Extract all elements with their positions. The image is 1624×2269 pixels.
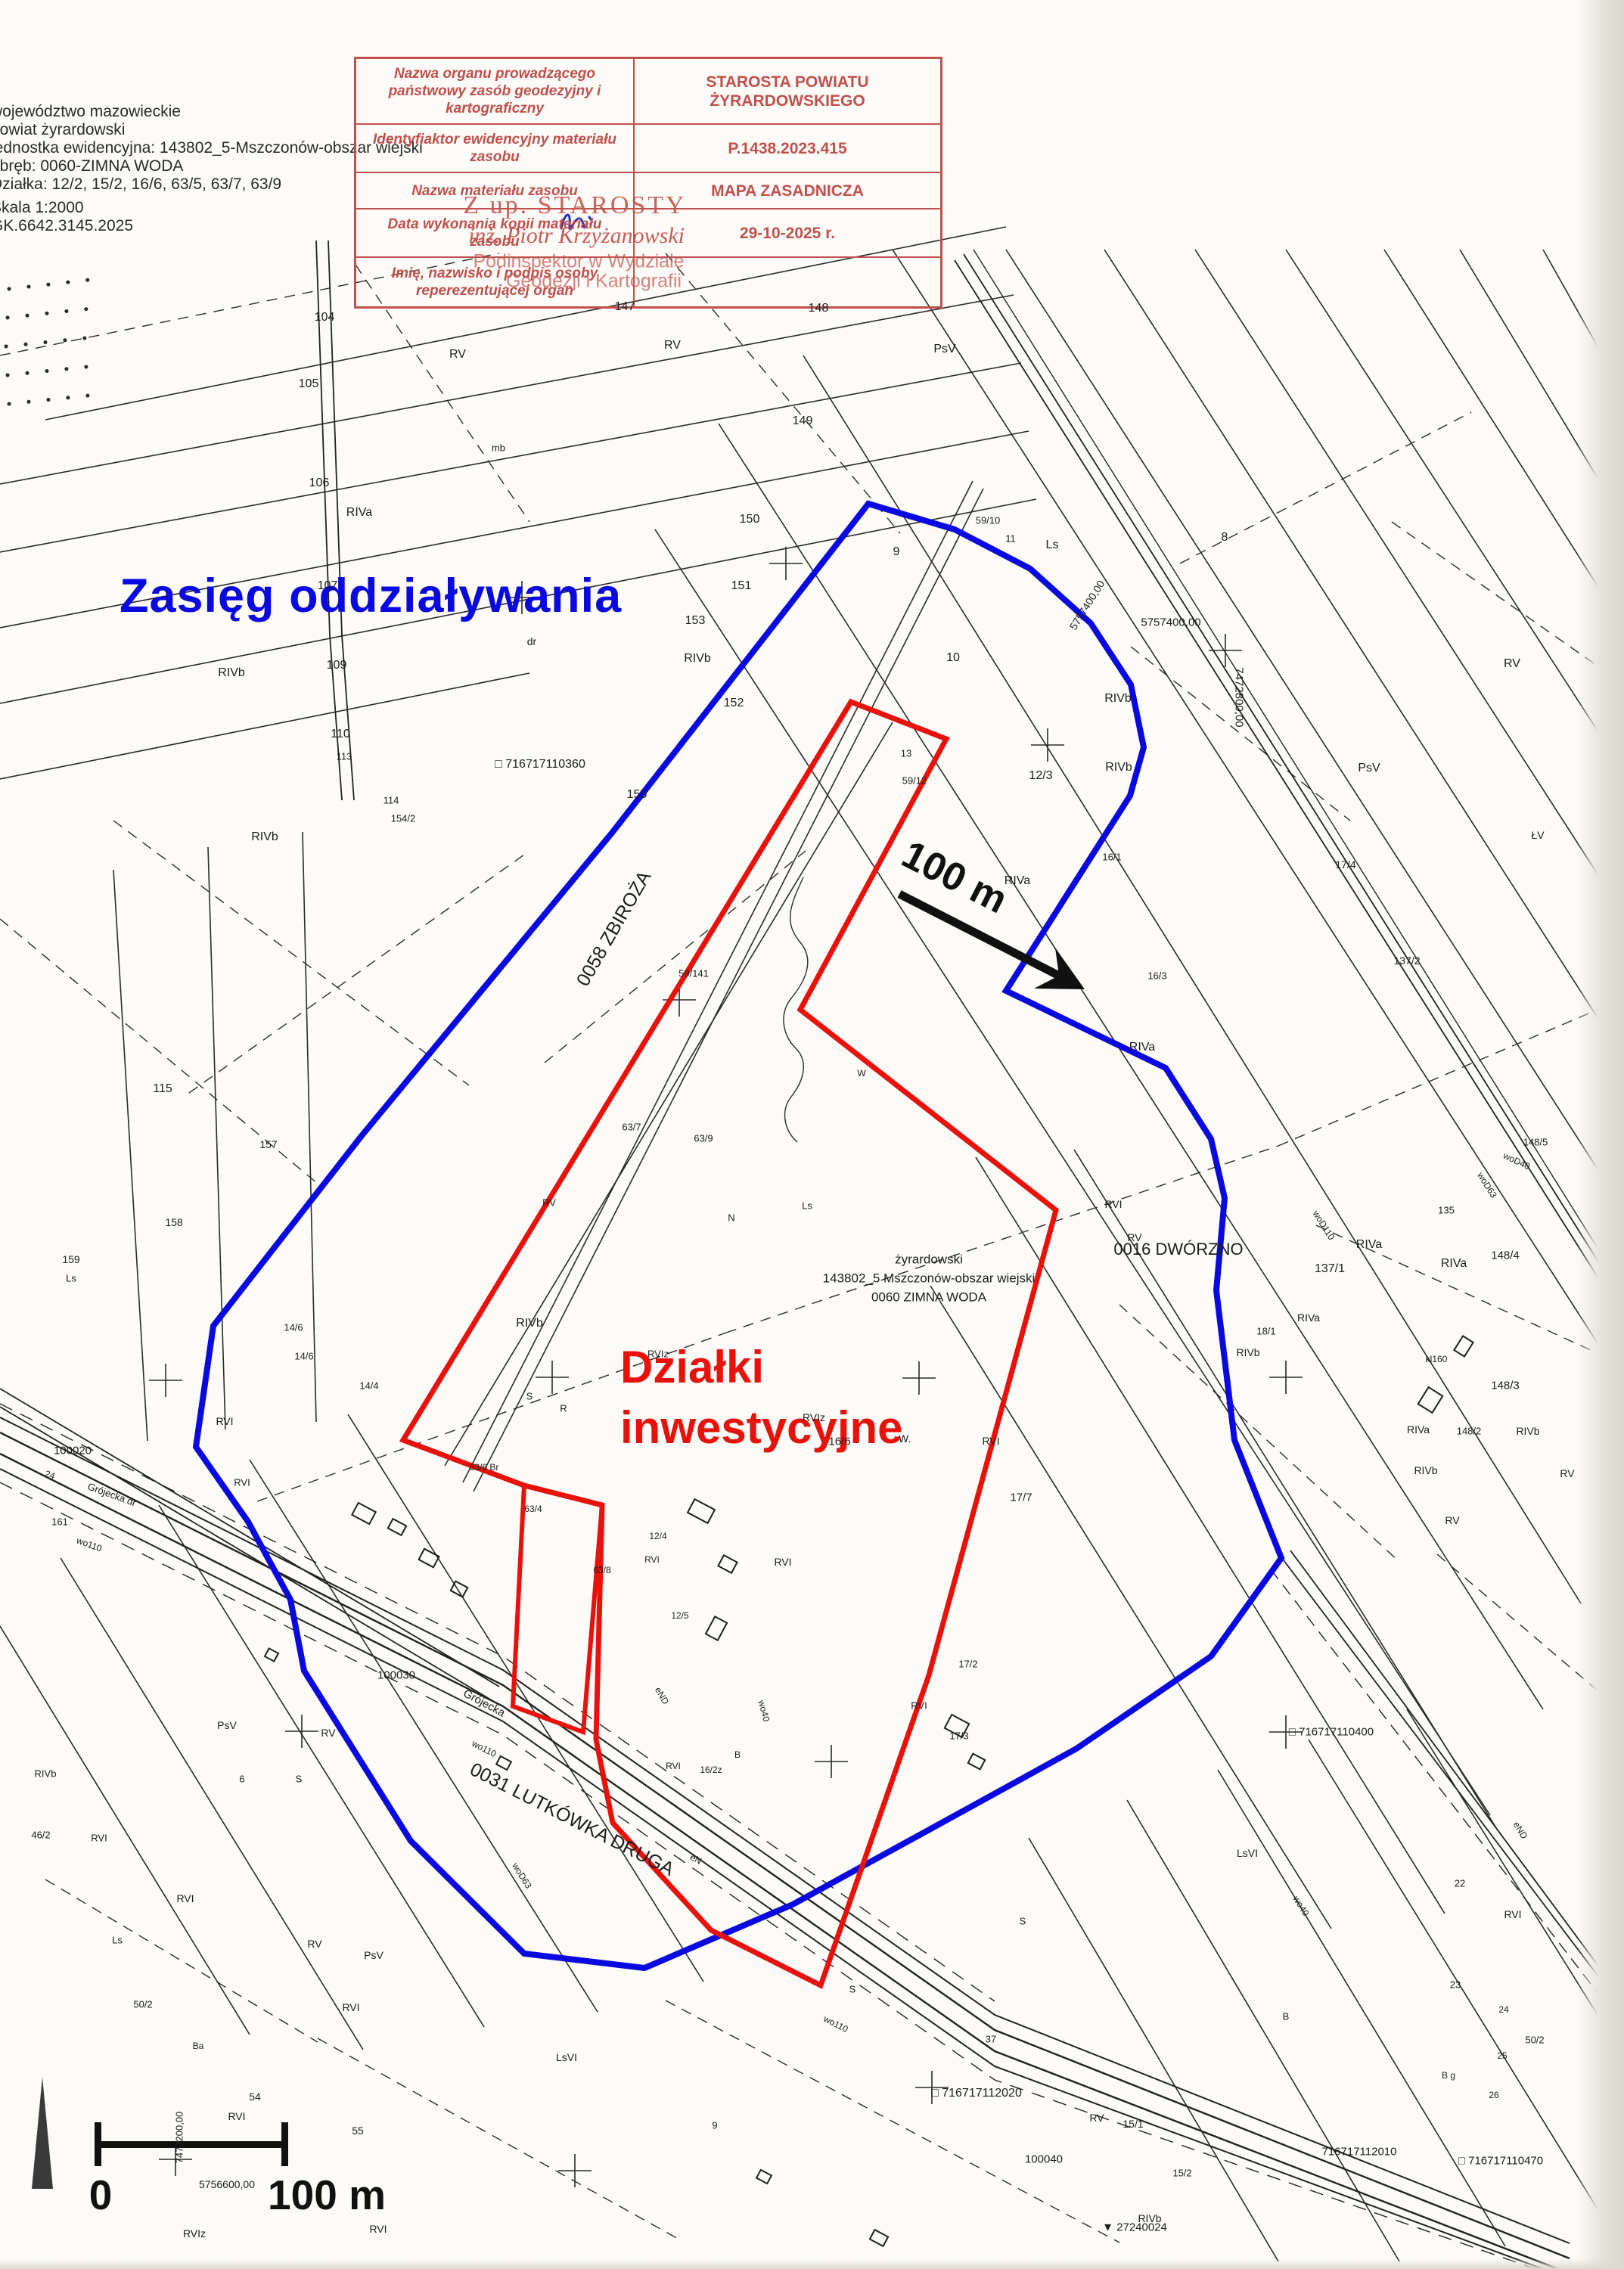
- map-label: 15/1: [1123, 2118, 1143, 2130]
- map-label: 10: [946, 651, 960, 665]
- map-label: RVI: [228, 2110, 245, 2122]
- map-label: 14/4: [359, 1380, 378, 1392]
- map-label: RV: [307, 1938, 321, 1950]
- map-label: 12/3: [1029, 769, 1052, 783]
- impact-range-outline: [196, 504, 1281, 1968]
- district-name: 0060 ZIMNA WODA: [823, 1288, 1036, 1307]
- map-label: 5757400,00: [1141, 616, 1200, 629]
- map-label: RV: [664, 339, 681, 352]
- map-label: RIVb: [1414, 1464, 1437, 1476]
- map-label: RV: [449, 348, 466, 362]
- map-label: □ 716717110400: [1289, 1726, 1374, 1739]
- stamp-authority-line: Z up. STAROSTY: [463, 191, 686, 220]
- map-label: 159: [62, 1253, 79, 1265]
- map-label: dr: [527, 635, 536, 647]
- map-label: B g: [1442, 2070, 1455, 2081]
- map-label: 12/4: [649, 1531, 666, 1541]
- map-label: 148/2: [1457, 1426, 1482, 1437]
- map-label: 7472200,00: [174, 2112, 185, 2164]
- map-label: 106: [309, 476, 330, 490]
- investment-plots-label-line2: inwestycyjne: [620, 1398, 903, 1458]
- map-label: RVIz: [183, 2227, 206, 2240]
- map-label: 9: [712, 2120, 717, 2131]
- map-label: 14/6: [284, 1322, 303, 1333]
- map-label: RVIz: [647, 1349, 669, 1360]
- map-label: RV: [1504, 657, 1520, 671]
- map-label: S: [1020, 1916, 1026, 1927]
- map-label: RIVb: [1138, 2212, 1161, 2224]
- map-label: 114: [383, 795, 399, 806]
- map-label: 109: [327, 659, 347, 672]
- map-label: □ 716717112020: [931, 2087, 1022, 2100]
- map-label: 113: [337, 751, 352, 762]
- table-row: Identyfiaktor ewidencyjny materiału zaso…: [356, 125, 940, 173]
- map-label: 17/3: [949, 1730, 968, 1742]
- map-label: B: [734, 1749, 741, 1760]
- map-label: PsV: [364, 1949, 383, 1961]
- map-label: W.: [899, 1432, 911, 1445]
- row-value: P.1438.2023.415: [635, 125, 940, 172]
- map-label: 12/5: [671, 1610, 688, 1621]
- map-label: 14/6: [294, 1351, 313, 1362]
- map-label: 152: [724, 697, 744, 710]
- map-label: 63/9: [694, 1133, 713, 1144]
- map-label: RV: [542, 1197, 556, 1209]
- map-label: Ba: [193, 2041, 204, 2051]
- map-label: 5756600,00: [199, 2178, 255, 2190]
- map-label: 153: [685, 614, 706, 628]
- map-label: RIVa: [1407, 1423, 1430, 1436]
- map-label: 135: [1438, 1205, 1455, 1216]
- map-canvas: [0, 0, 1624, 2269]
- row-label: Identyfiaktor ewidencyjny materiału zaso…: [356, 125, 635, 172]
- map-label: 716717112010: [1322, 2146, 1397, 2159]
- map-label: S: [849, 1984, 856, 1995]
- map-label: RIVb: [218, 666, 245, 680]
- map-label: 107: [318, 579, 338, 593]
- map-label: RVI: [369, 2223, 387, 2235]
- map-label: 7472800,00: [1233, 667, 1246, 727]
- map-label: 158: [165, 1216, 182, 1228]
- map-label: 150: [740, 513, 760, 526]
- map-label: 16/1: [1102, 852, 1121, 863]
- map-label: 50/2: [133, 1999, 152, 2010]
- map-label: 105: [299, 377, 319, 391]
- map-label: 15/2: [1172, 2168, 1191, 2179]
- map-label: 16/3: [1147, 970, 1166, 982]
- map-label: RIVa: [1005, 874, 1030, 888]
- map-label: 104: [315, 311, 335, 324]
- map-label: 18/1: [1256, 1326, 1275, 1337]
- map-label: RIVb: [684, 652, 711, 666]
- map-label: kl160: [1426, 1354, 1448, 1364]
- map-label: 148/3: [1491, 1380, 1520, 1392]
- map-label: Ls: [112, 1935, 123, 1946]
- map-label: 137/2: [1393, 954, 1420, 967]
- map-label: S: [296, 1774, 303, 1785]
- map-label: 100020: [54, 1445, 92, 1457]
- map-label: 100040: [1025, 2153, 1063, 2166]
- map-label: mb: [492, 442, 505, 454]
- map-label: 154/2: [391, 813, 416, 824]
- map-label: ŁV: [1531, 829, 1544, 841]
- map-label: 115: [153, 1082, 172, 1096]
- map-label: 59/12: [902, 775, 927, 787]
- investment-plots-annex-outline: [513, 1485, 602, 1732]
- map-label: RVI: [91, 1833, 107, 1844]
- map-label: 17/4: [1335, 858, 1355, 871]
- map-label: N: [728, 1212, 734, 1224]
- map-label: RVI: [1504, 1908, 1521, 1920]
- map-label: B: [1283, 2011, 1290, 2022]
- map-label: 16/2z: [700, 1765, 722, 1775]
- map-label: 148: [809, 302, 829, 315]
- map-label: 6: [239, 1774, 244, 1785]
- map-label: RVI: [342, 2001, 359, 2013]
- map-label: PsV: [1358, 762, 1380, 775]
- scalebar-zero-label: 0: [89, 2171, 113, 2219]
- map-label: 59/141: [678, 968, 709, 979]
- stamp-position-line1: Podinspektor w Wydziale: [473, 251, 684, 273]
- map-label: 22: [1455, 1878, 1465, 1889]
- map-label: 110: [331, 728, 350, 741]
- map-label: RIVa: [1297, 1311, 1320, 1324]
- map-label: 9: [893, 545, 900, 559]
- map-label: 155: [627, 788, 647, 802]
- map-label: RVI: [216, 1415, 233, 1427]
- map-label: 16/6: [828, 1436, 850, 1448]
- map-label: RVI: [234, 1477, 250, 1488]
- map-label: 63/7: [622, 1122, 641, 1133]
- map-label: RIVb: [35, 1768, 57, 1780]
- map-label: 148/4: [1491, 1249, 1520, 1262]
- map-label: RIVb: [251, 830, 278, 844]
- map-label: RV: [1089, 2112, 1104, 2124]
- map-label: RIVb: [1236, 1346, 1259, 1358]
- map-label: 137/1: [1315, 1262, 1345, 1276]
- map-label: LsVI: [1237, 1847, 1258, 1859]
- map-label: RIVa: [1441, 1257, 1467, 1271]
- row-value: STAROSTA POWIATU ŻYRARDOWSKIEGO: [635, 59, 940, 123]
- map-label: 63/8: [593, 1565, 610, 1575]
- map-label: LsVI: [556, 2051, 577, 2063]
- stamp-position-line2: Geodezji i Kartografii: [506, 271, 682, 293]
- map-label: R: [560, 1403, 567, 1414]
- map-label: 157: [259, 1138, 277, 1150]
- stamp-signature-name: inż. Piotr Krzyżanowski: [468, 223, 685, 249]
- scalebar-hundred-label: 100 m: [268, 2171, 386, 2219]
- map-label: 13: [901, 748, 911, 759]
- district-county: żyrardowski: [823, 1250, 1036, 1269]
- map-label: W: [857, 1068, 865, 1079]
- map-label: 25: [1497, 2050, 1507, 2061]
- map-label: 59/10: [976, 515, 1001, 526]
- map-label: RIVa: [1356, 1238, 1382, 1252]
- row-label: Nazwa organu prowadzącego państwowy zasó…: [356, 59, 635, 123]
- map-label: 8: [1222, 531, 1228, 545]
- map-label: 54: [249, 2091, 261, 2103]
- map-label: RVI: [176, 1892, 194, 1904]
- map-label: RVI: [982, 1435, 999, 1447]
- investment-plots-label-line1: Działki: [620, 1337, 903, 1398]
- map-label: RIVa: [346, 506, 372, 520]
- map-label: RIVa: [1129, 1041, 1155, 1054]
- map-label: 63/6 Br: [470, 1462, 499, 1473]
- map-label: Ls: [66, 1273, 76, 1284]
- map-label: RIVb: [1105, 761, 1132, 774]
- map-label: RVI: [774, 1556, 791, 1568]
- map-label: RVIz: [803, 1411, 825, 1423]
- map-label: 50/2: [1525, 2035, 1544, 2046]
- map-label: 55: [352, 2125, 364, 2137]
- district-unit: 143802_5 Mszczonów-obszar wiejski: [823, 1269, 1036, 1288]
- map-label: 100030: [377, 1669, 415, 1682]
- map-label: PsV: [217, 1719, 237, 1731]
- table-row: Nazwa organu prowadzącego państwowy zasó…: [356, 59, 940, 125]
- map-label: □ 716717110360: [495, 758, 585, 771]
- paper-sheet: województwo mazowieckie powiat żyrardows…: [0, 0, 1624, 2269]
- map-label: 46/2: [31, 1830, 50, 1841]
- scan-edge-shadow: [1577, 0, 1624, 2269]
- map-label: 161: [51, 1516, 68, 1528]
- map-label: RVI: [666, 1761, 681, 1771]
- map-label: RIVb: [1104, 692, 1132, 706]
- map-label: RV: [321, 1727, 335, 1739]
- map-label: 147: [615, 300, 635, 314]
- map-label: Ls: [802, 1200, 812, 1212]
- map-label: RVI: [911, 1700, 927, 1712]
- orchard-dots: [6, 280, 95, 404]
- map-label: 24: [1498, 2004, 1508, 2015]
- scanned-cadastral-map: { "colors":{"impact_outline":"#0a0ae0","…: [0, 0, 1624, 2269]
- map-label: 63/4: [524, 1504, 542, 1514]
- map-label: RVI: [1104, 1198, 1122, 1210]
- map-label: 23: [1450, 1979, 1461, 1991]
- map-label: 37: [986, 2034, 996, 2045]
- impact-range-label: Zasięg oddziaływania: [120, 569, 622, 623]
- map-label: RV: [1560, 1467, 1574, 1479]
- scan-bottom-shadow: [0, 2258, 1624, 2269]
- map-label: RV: [1445, 1514, 1459, 1526]
- map-label: 17/2: [958, 1659, 977, 1670]
- map-label: RV: [1127, 1231, 1141, 1243]
- road-lines: [0, 241, 1624, 2269]
- wedge-mark: [32, 2077, 53, 2189]
- map-label: 11: [1005, 533, 1016, 545]
- map-label: 151: [731, 579, 752, 593]
- map-label: 149: [793, 414, 813, 428]
- map-label: Ls: [1046, 539, 1059, 552]
- map-label: RIVb: [516, 1317, 543, 1330]
- map-label: RIVb: [1516, 1425, 1539, 1437]
- map-label: 26: [1489, 2090, 1498, 2100]
- map-label: PsV: [933, 343, 955, 356]
- map-label: □ 716717110470: [1458, 2155, 1543, 2168]
- map-label: 148/5: [1523, 1137, 1548, 1148]
- district-identifier-block: żyrardowski 143802_5 Mszczonów-obszar wi…: [823, 1250, 1036, 1307]
- map-label: RVI: [644, 1554, 660, 1565]
- map-label: 17/7: [1010, 1491, 1032, 1504]
- map-label: S: [526, 1391, 533, 1402]
